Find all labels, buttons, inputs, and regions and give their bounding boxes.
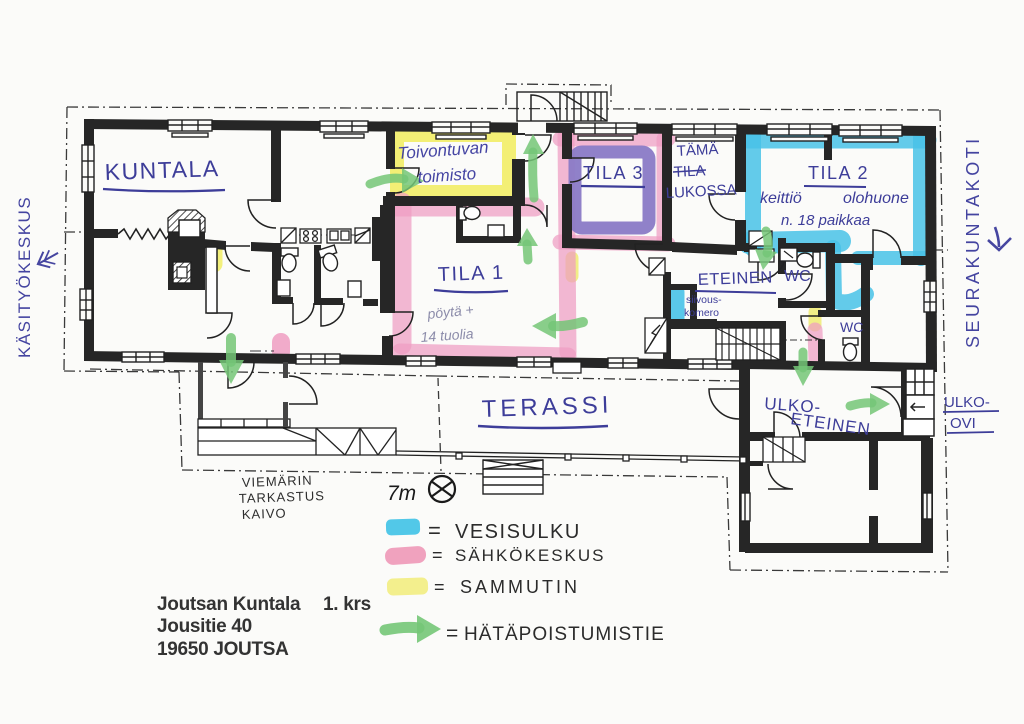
- svg-text:siivous-: siivous-: [686, 294, 722, 306]
- svg-text:SÄHKÖKESKUS: SÄHKÖKESKUS: [455, 546, 606, 565]
- svg-text:7m: 7m: [387, 482, 416, 505]
- svg-text:WC: WC: [784, 268, 811, 285]
- svg-text:1. krs: 1. krs: [323, 594, 371, 615]
- svg-text:TILA 3: TILA 3: [583, 163, 644, 183]
- svg-text:KAIVO: KAIVO: [242, 505, 287, 522]
- svg-text:Joutsan Kuntala: Joutsan Kuntala: [157, 594, 301, 615]
- svg-text:VIEMÄRIN: VIEMÄRIN: [242, 473, 313, 490]
- svg-text:TERASSI: TERASSI: [481, 391, 613, 423]
- svg-text:=: =: [428, 518, 441, 543]
- svg-text:WC: WC: [840, 319, 863, 335]
- svg-text:19650 JOUTSA: 19650 JOUTSA: [157, 639, 289, 660]
- svg-text:=: =: [446, 622, 458, 645]
- svg-text:TILA 1: TILA 1: [437, 262, 505, 286]
- svg-text:TARKASTUS: TARKASTUS: [239, 488, 326, 506]
- svg-text:SEURAKUNTAKOTI: SEURAKUNTAKOTI: [963, 135, 983, 348]
- svg-text:=: =: [432, 545, 443, 565]
- svg-text:HÄTÄPOISTUMISTIE: HÄTÄPOISTUMISTIE: [464, 624, 665, 645]
- svg-text:ETEINEN: ETEINEN: [698, 268, 774, 289]
- svg-text:SAMMUTIN: SAMMUTIN: [460, 577, 580, 597]
- svg-text:keittiö: keittiö: [760, 190, 802, 207]
- svg-text:olohuone: olohuone: [843, 190, 909, 207]
- svg-text:TÄMÄ: TÄMÄ: [676, 141, 719, 160]
- svg-text:n. 18 paikkaa: n. 18 paikkaa: [781, 212, 870, 229]
- svg-text:KÄSITYÖKESKUS: KÄSITYÖKESKUS: [15, 196, 34, 358]
- svg-text:KUNTALA: KUNTALA: [104, 155, 220, 185]
- svg-text:Jousitie 40: Jousitie 40: [157, 616, 252, 637]
- svg-text:TILA 2: TILA 2: [808, 163, 869, 183]
- svg-text:=: =: [434, 577, 445, 597]
- svg-text:OVI: OVI: [950, 415, 976, 432]
- svg-text:komero: komero: [684, 307, 719, 319]
- svg-text:ULKO-: ULKO-: [944, 394, 990, 411]
- svg-text:VESISULKU: VESISULKU: [455, 521, 581, 543]
